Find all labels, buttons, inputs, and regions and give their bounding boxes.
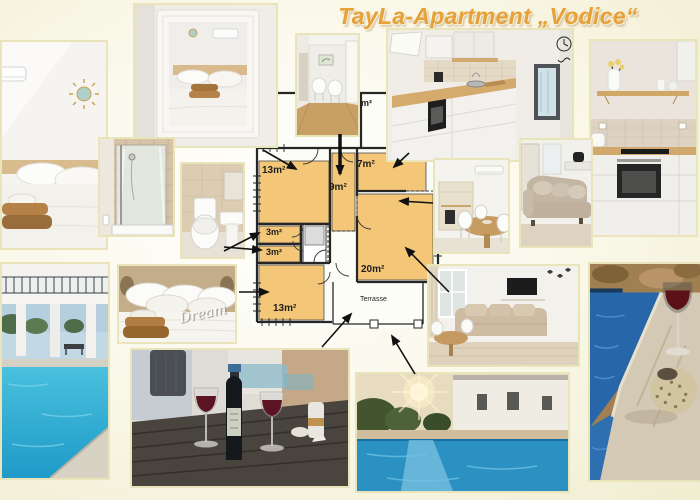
photo-wine-poolside bbox=[588, 262, 700, 482]
photo-wine-poolside-image bbox=[590, 264, 700, 480]
page-title: TayLa-Apartment „Vodice“ bbox=[338, 3, 638, 30]
room-label-kitchen: 7m² bbox=[357, 159, 375, 170]
plan-shower-tray bbox=[305, 226, 324, 245]
room-label-hallway: 9m² bbox=[329, 182, 347, 193]
room-label-living: 20m² bbox=[361, 264, 384, 275]
room-label-terrace: Terrasse bbox=[360, 296, 387, 303]
collage-flyer: 13m² 9m² 7m² 3m² 3m² 20m² 13m² 4m² Terra… bbox=[0, 0, 700, 500]
photo-mirror-bedroom-image bbox=[135, 5, 276, 146]
tv bbox=[507, 278, 537, 295]
photo-dining bbox=[433, 158, 510, 254]
photo-wine-table bbox=[130, 348, 350, 488]
photo-toilet bbox=[180, 162, 245, 259]
photo-pool-villa-image bbox=[2, 264, 108, 478]
photo-living-room bbox=[427, 264, 580, 367]
photo-dream-bed: Dream bbox=[117, 264, 237, 344]
photo-sofa-nook-image bbox=[521, 140, 591, 246]
photo-hallway bbox=[295, 33, 360, 137]
photo-shower-image bbox=[100, 139, 173, 235]
photo-bedroom-left bbox=[0, 40, 108, 250]
photo-bedroom-left-image bbox=[2, 42, 106, 248]
photo-shower bbox=[98, 137, 175, 237]
room-label-bedroom-top: 13m² bbox=[262, 165, 285, 176]
photo-living-room-image bbox=[429, 266, 578, 365]
photo-dining-image bbox=[435, 160, 508, 252]
photo-mirror-bedroom bbox=[133, 3, 278, 148]
photo-pool-sunset-image bbox=[357, 374, 568, 491]
room-label-store-1: 3m² bbox=[266, 227, 282, 237]
room-label-store-2: 3m² bbox=[266, 247, 282, 257]
photo-pool-villa bbox=[0, 262, 110, 480]
photo-sofa-nook bbox=[519, 138, 593, 248]
photo-kitchen-corner-image bbox=[591, 41, 696, 235]
room-label-bedroom-bottom: 13m² bbox=[273, 303, 296, 314]
photo-wine-table-image bbox=[132, 350, 348, 486]
photo-toilet-image bbox=[182, 164, 243, 257]
photo-pool-sunset bbox=[355, 372, 570, 493]
photo-hallway-image bbox=[297, 35, 358, 135]
photo-kitchen-corner bbox=[589, 39, 698, 237]
